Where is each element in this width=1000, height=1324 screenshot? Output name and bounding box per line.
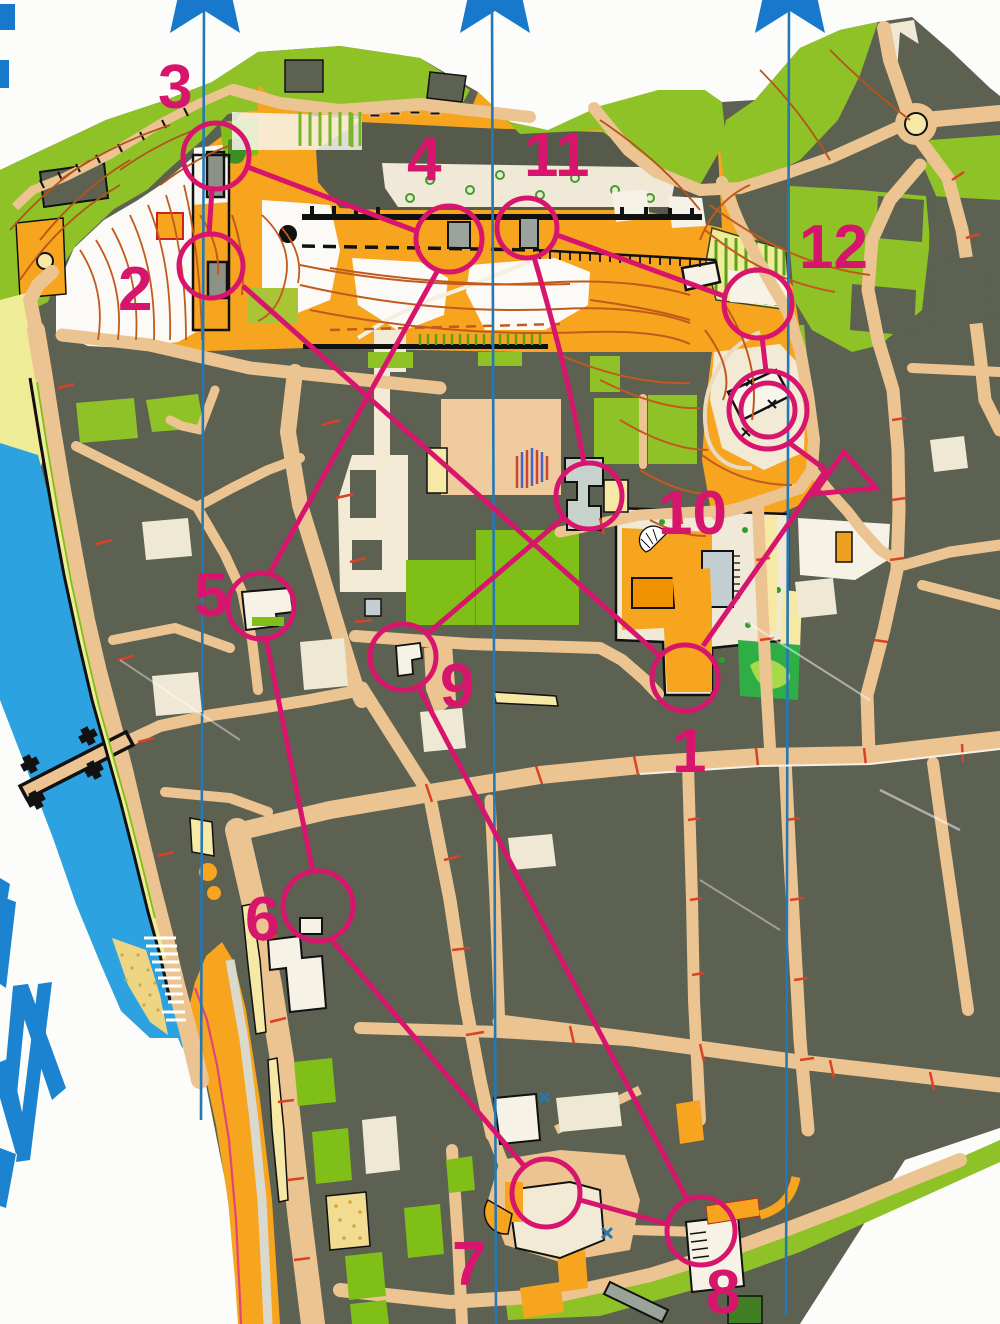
svg-text:11: 11 (524, 121, 590, 190)
svg-text:5: 5 (194, 561, 228, 630)
svg-text:3: 3 (158, 53, 192, 122)
svg-text:10: 10 (658, 479, 727, 548)
svg-text:2: 2 (118, 255, 152, 324)
svg-text:9: 9 (440, 652, 474, 721)
svg-text:12: 12 (799, 213, 868, 282)
svg-text:6: 6 (245, 885, 279, 954)
svg-text:7: 7 (452, 1230, 486, 1299)
svg-text:8: 8 (706, 1258, 740, 1324)
svg-text:4: 4 (407, 125, 442, 194)
svg-text:1: 1 (672, 717, 706, 786)
